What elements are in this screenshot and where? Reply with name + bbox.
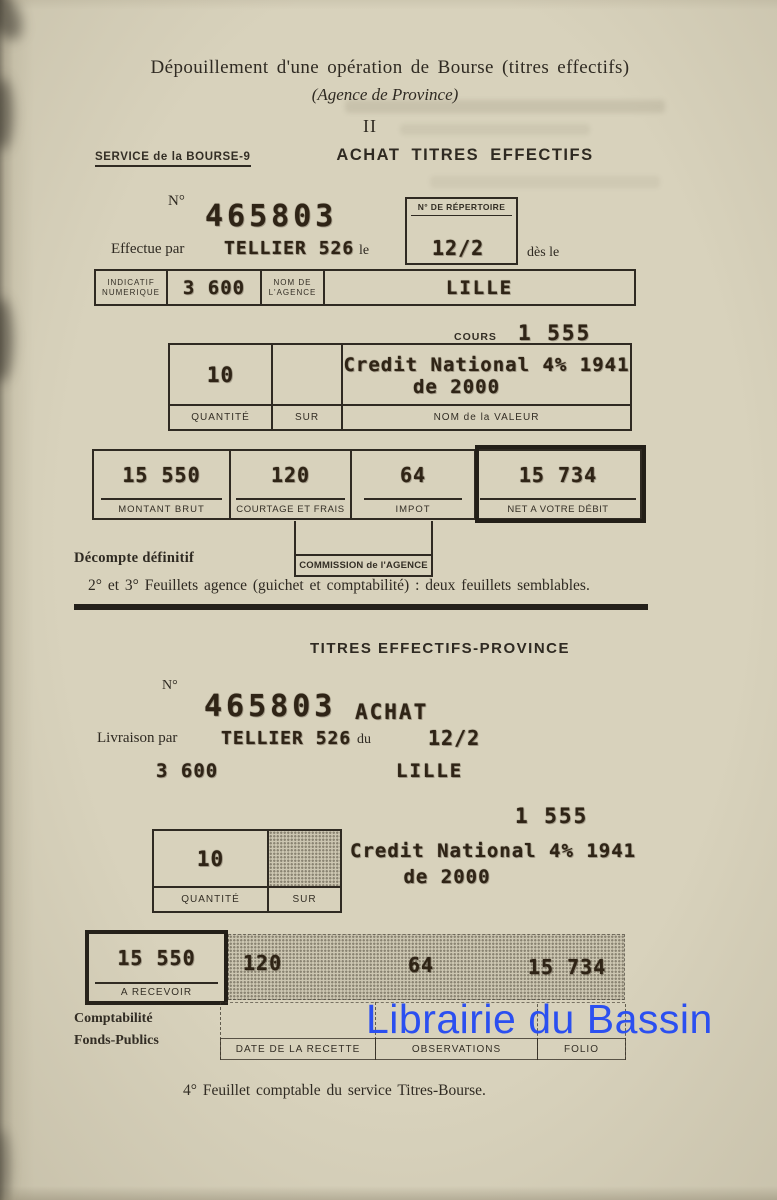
form2-du-label: du [357, 732, 371, 748]
form2-heading: TITRES EFFECTIFS-PROVINCE [290, 640, 590, 657]
form2-date-value: 12/2 [428, 726, 480, 750]
scan-smudge [0, 298, 13, 382]
montant-brut-value: 15 550 [122, 463, 200, 487]
net-debit-value: 15 734 [519, 463, 597, 487]
form1-quantite-value: 10 [207, 363, 234, 387]
form1-cours-value: 1 555 [518, 321, 591, 345]
sur-label: SUR [295, 412, 319, 423]
form2-courtage-value: 120 [243, 951, 282, 975]
commission-box: COMMISSION de l'AGENCE [294, 521, 433, 577]
montant-brut-label: MONTANT BRUT [118, 504, 205, 515]
form2-quantite-label: QUANTITÉ [181, 894, 240, 905]
sur-shaded-cell [269, 831, 340, 886]
form1-heading: ACHAT TITRES EFFECTIFS [300, 146, 630, 165]
net-debit-label: NET A VOTRE DÉBIT [507, 504, 608, 515]
recevoir-value: 15 550 [117, 946, 195, 970]
form2-valeur-line2: de 2000 [357, 866, 537, 888]
montant-table: 15 550 MONTANT BRUT 120 COURTAGE ET FRAI… [92, 449, 642, 520]
impot-value: 64 [400, 463, 426, 487]
form2-indicatif-value: 3 600 [156, 760, 218, 782]
indicatif-label: INDICATIF [107, 278, 155, 288]
agence-value: LILLE [446, 277, 513, 299]
courtage-label: COURTAGE ET FRAIS [236, 504, 344, 515]
commission-label: COMMISSION de l'AGENCE [299, 560, 428, 571]
form2-numero-value: 465803 [204, 689, 336, 724]
form2-net-value: 15 734 [528, 955, 606, 979]
recevoir-label: A RECEVOIR [121, 987, 192, 998]
form2-impot-value: 64 [408, 953, 434, 977]
scanned-page: Dépouillement d'une opération de Bourse … [0, 0, 777, 1200]
quantite-label: QUANTITÉ [191, 412, 250, 423]
indicatif-value: 3 600 [183, 277, 245, 299]
form2-operation-value: ACHAT [355, 700, 428, 724]
date-recette-header: DATE DE LA RECETTE [220, 1038, 376, 1060]
indicatif-strip: INDICATIF NUMERIQUE 3 600 NOM DE L'AGENC… [94, 269, 636, 306]
valeur-label: NOM de la VALEUR [434, 412, 540, 423]
scan-smudge [0, 0, 29, 46]
ghost-print [430, 176, 660, 188]
courtage-value: 120 [271, 463, 310, 487]
recevoir-box: 15 550 A RECEVOIR [85, 930, 228, 1005]
form2-quantity-table: 10 QUANTITÉ SUR [152, 829, 342, 913]
form1-date-value: 12/2 [432, 236, 484, 260]
livraison-label: Livraison par [97, 730, 177, 747]
agence-label: NOM DE [274, 278, 312, 288]
service-stamp: SERVICE de la BOURSE-9 [95, 151, 251, 167]
comptabilite-line1: Comptabilité [74, 1011, 153, 1027]
scan-smudge [0, 1130, 10, 1200]
form1-valeur-line2: de 2000 [413, 376, 500, 398]
form2-quantite-value: 10 [197, 847, 224, 871]
feuillets-note: 2° et 3° Feuillets agence (guichet et co… [88, 577, 590, 595]
form1-numero-label: N° [168, 193, 185, 210]
form1-effectue-label: Effectue par [111, 241, 184, 258]
cours-label: COURS [454, 331, 497, 343]
form2-valeur-line1: Credit National 4% 1941 [350, 840, 635, 862]
form2-sur-label: SUR [292, 894, 316, 905]
section-numeral: II [0, 116, 740, 137]
decompte-label: Décompte définitif [74, 550, 194, 567]
form2-agence-value: LILLE [396, 760, 463, 782]
form1-numero-value: 465803 [205, 199, 337, 234]
form1-le-label: le [359, 243, 369, 259]
form1-effectue-value: TELLIER 526 [224, 238, 354, 259]
form1-valeur-line1: Credit National 4% 1941 [343, 354, 629, 376]
page-title: Dépouillement d'une opération de Bourse … [0, 57, 777, 79]
comptabilite-line2: Fonds-Publics [74, 1033, 159, 1049]
repertoire-label: N° DE RÉPERTOIRE [411, 202, 512, 216]
form2-numero-label: N° [162, 678, 178, 694]
form2-cours-value: 1 555 [515, 804, 588, 828]
footer-note: 4° Feuillet comptable du service Titres-… [183, 1082, 486, 1100]
livraison-value: TELLIER 526 [221, 728, 351, 749]
form1-quantity-table: 10 Credit National 4% 1941 de 2000 QUANT… [168, 343, 632, 431]
section-divider-rule [74, 604, 648, 610]
page-subtitle: (Agence de Province) [0, 85, 770, 105]
form1-desle-label: dès le [527, 245, 559, 261]
impot-label: IMPOT [395, 504, 430, 515]
bookseller-watermark: Librairie du Bassin [366, 996, 713, 1043]
